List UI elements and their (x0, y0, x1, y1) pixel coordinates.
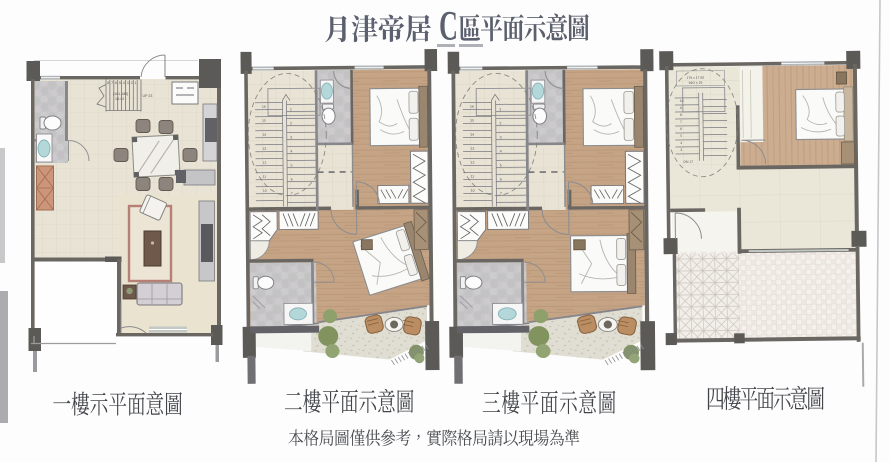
svg-text:5: 5 (119, 81, 121, 85)
svg-text:8: 8 (680, 113, 682, 117)
svg-text:15: 15 (470, 119, 474, 123)
svg-text:4: 4 (680, 141, 682, 145)
svg-text:10: 10 (263, 189, 267, 193)
svg-text:2: 2 (499, 121, 501, 125)
svg-text:13: 13 (470, 147, 474, 151)
svg-text:16: 16 (470, 105, 474, 109)
svg-text:3: 3 (500, 135, 502, 139)
svg-text:6: 6 (115, 81, 117, 85)
svg-text:3: 3 (127, 81, 129, 85)
svg-text:7: 7 (680, 120, 682, 124)
svg-text:4: 4 (290, 149, 292, 153)
svg-text:14: 14 (470, 133, 474, 137)
svg-text:2: 2 (290, 121, 292, 125)
svg-text:5: 5 (680, 134, 682, 138)
svg-text:DN 17: DN 17 (473, 208, 483, 212)
svg-text:5: 5 (500, 163, 502, 167)
svg-text:6: 6 (500, 177, 502, 181)
svg-text:(181.185): (181.185) (113, 92, 128, 96)
svg-text:9: 9 (680, 106, 682, 110)
svg-text:6: 6 (291, 177, 293, 181)
svg-text:5: 5 (291, 163, 293, 167)
svg-text:7: 7 (500, 191, 502, 195)
svg-text:15: 15 (262, 119, 266, 123)
svg-text:C: C (439, 2, 458, 49)
svg-text:3: 3 (290, 135, 292, 139)
svg-text:2: 2 (131, 81, 133, 85)
svg-text:UP 23: UP 23 (143, 94, 153, 98)
svg-text:4: 4 (123, 81, 125, 85)
svg-text:16: 16 (262, 105, 266, 109)
svg-text:4: 4 (500, 149, 502, 153)
svg-text:1: 1 (499, 107, 501, 111)
svg-text:13: 13 (262, 147, 266, 151)
svg-text:18-42: 18-42 (115, 97, 124, 101)
svg-text:14: 14 (262, 133, 266, 137)
svg-text:94G x 29: 94G x 29 (689, 81, 703, 85)
svg-text:6: 6 (680, 127, 682, 131)
svg-text:1: 1 (290, 107, 292, 111)
svg-text:DN 17: DN 17 (684, 160, 694, 164)
svg-text:7: 7 (111, 81, 113, 85)
svg-text:8: 8 (107, 81, 109, 85)
svg-text:3: 3 (680, 148, 682, 152)
svg-text:1: 1 (135, 81, 137, 85)
svg-text:12: 12 (470, 161, 474, 165)
svg-text:11: 11 (263, 175, 267, 179)
svg-text:10: 10 (680, 99, 684, 103)
svg-text:11: 11 (471, 175, 475, 179)
svg-text:DN 17: DN 17 (265, 208, 275, 212)
svg-text:10: 10 (471, 189, 475, 193)
svg-text:179 x 17.65: 179 x 17.65 (686, 76, 704, 80)
svg-text:7: 7 (291, 191, 293, 195)
svg-text:12: 12 (263, 161, 267, 165)
